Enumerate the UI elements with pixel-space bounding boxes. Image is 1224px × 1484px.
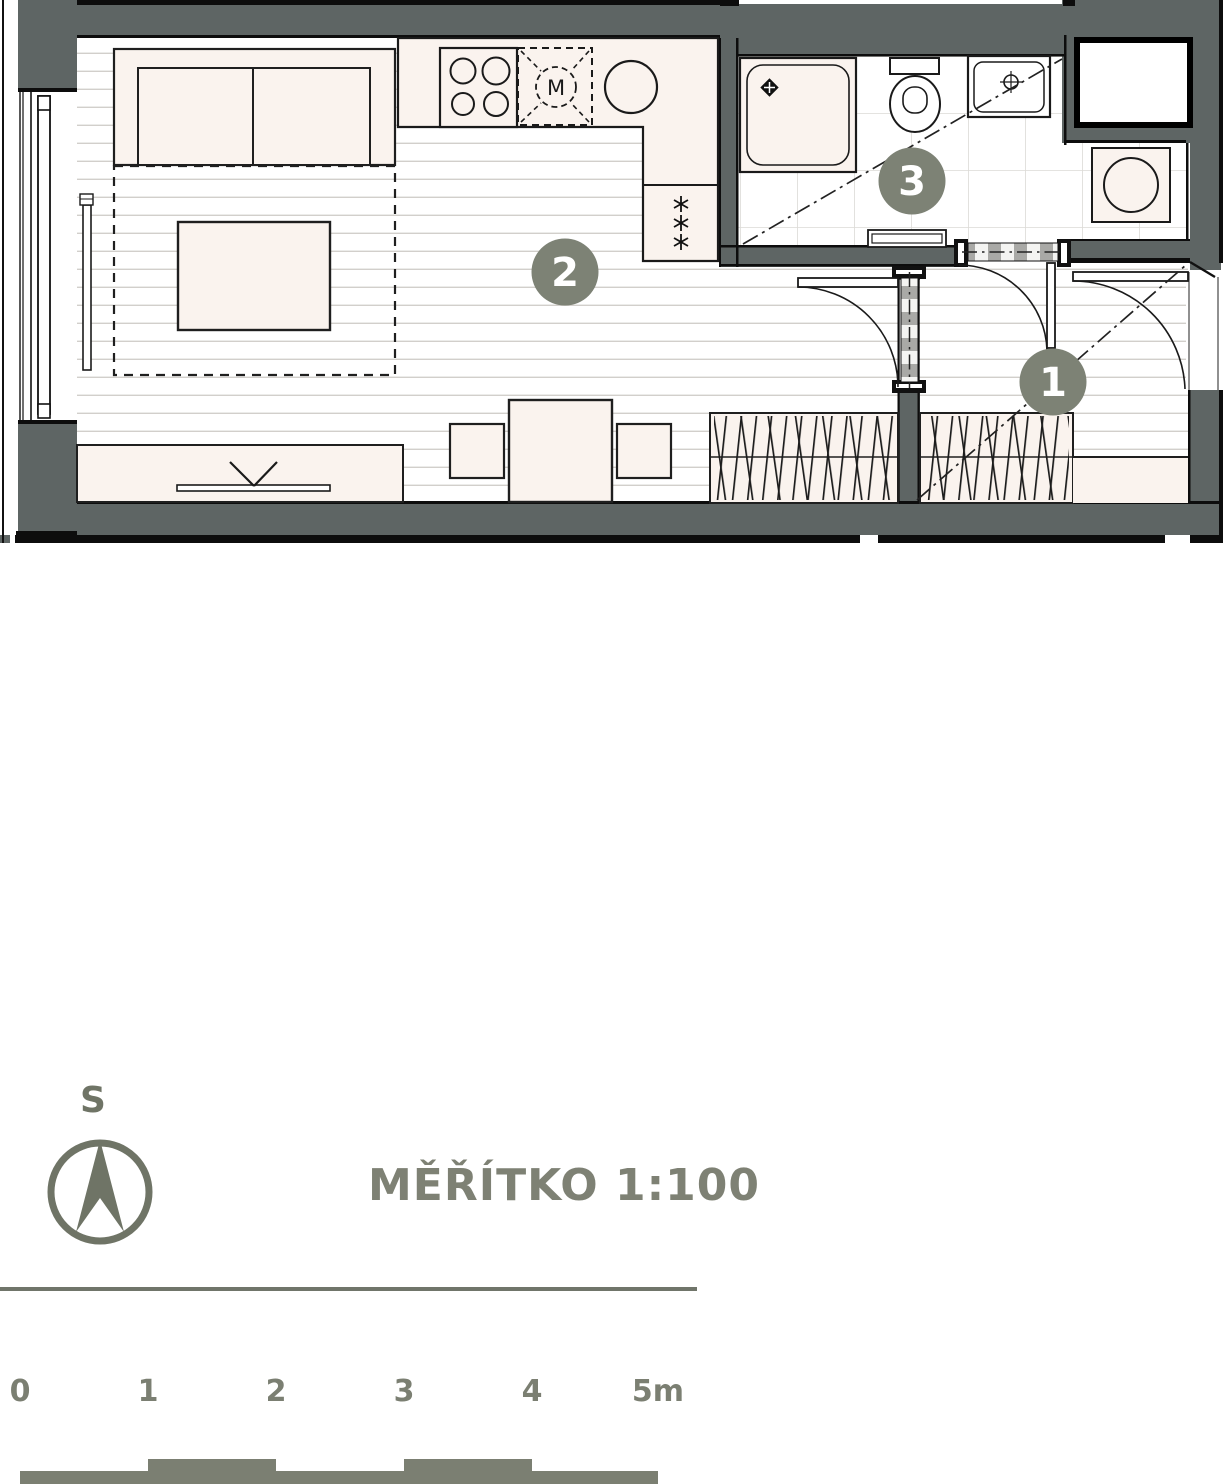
room-marker-number: 3 <box>898 159 926 205</box>
scale-title: MĚŘÍTKO 1:100 <box>368 1160 868 1211</box>
floor-plan-page: M <box>0 0 1224 1484</box>
sofa <box>114 49 395 165</box>
washbasin-icon <box>968 56 1050 117</box>
room-marker-number: 2 <box>551 250 579 296</box>
room-marker-3: 3 <box>879 148 946 215</box>
scale-tick: 1 <box>138 1374 159 1409</box>
scale-tick: 2 <box>266 1374 287 1409</box>
bath-mat <box>868 230 946 247</box>
scale-tick: 0 <box>10 1374 31 1409</box>
hob-icon <box>440 48 517 127</box>
chair-right <box>617 424 671 478</box>
bottom-facade-line <box>15 535 1221 543</box>
door-leaf <box>1073 272 1188 281</box>
floor-plan-drawing: M <box>0 0 1224 560</box>
chair-left <box>450 424 504 478</box>
scale-tick: 5m <box>632 1374 684 1409</box>
scale-bar-upper-segment <box>404 1459 532 1471</box>
toilet-icon <box>890 58 940 132</box>
wardrobe-living <box>710 413 898 503</box>
scale-tick: 4 <box>522 1374 543 1409</box>
room-marker-2: 2 <box>532 239 599 306</box>
kitchen-sink-icon <box>605 61 657 113</box>
dining-table <box>509 400 612 502</box>
tv-sideboard <box>77 445 403 502</box>
room-marker-number: 1 <box>1039 360 1067 406</box>
divider-line <box>0 1287 697 1291</box>
coffee-table <box>178 222 330 330</box>
door-leaf <box>798 278 898 287</box>
north-arrow-icon <box>76 1140 124 1232</box>
washing-machine-icon <box>1092 148 1170 222</box>
shower <box>740 58 856 172</box>
shaft <box>1077 40 1190 125</box>
door-leaf <box>1047 263 1055 348</box>
north-compass: S <box>0 1040 220 1320</box>
scale-bar-upper-segment <box>148 1459 276 1471</box>
scale-tick: 3 <box>394 1374 415 1409</box>
scale-bar-lower-band <box>20 1471 658 1484</box>
room-marker-1: 1 <box>1020 349 1087 416</box>
hall-bench <box>1073 457 1188 503</box>
wardrobe-hall <box>920 413 1073 503</box>
north-label: S <box>80 1080 106 1121</box>
microwave-label: M <box>547 76 565 100</box>
